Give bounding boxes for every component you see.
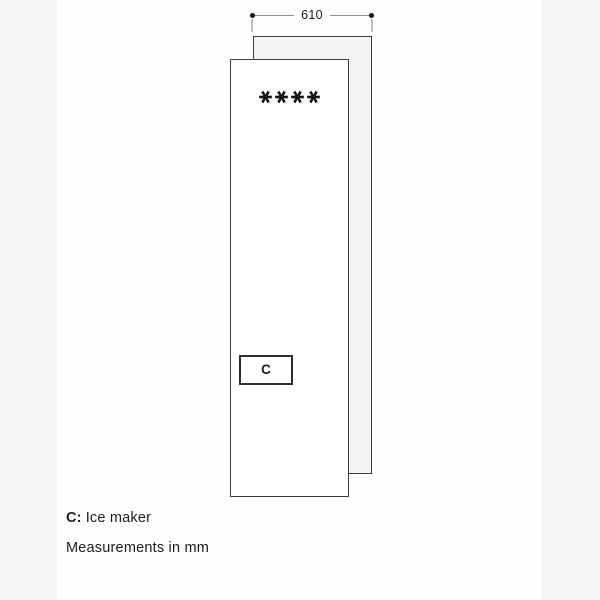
dimension-line: [330, 15, 369, 17]
ice-maker-marker-label: C: [261, 363, 271, 377]
legend-key: C:: [66, 510, 82, 526]
extension-line-left: [251, 19, 253, 32]
dimension-line: [255, 15, 294, 17]
legend: C:Ice maker Measurements in mm: [66, 511, 209, 570]
legend-item-ice-maker: C:Ice maker: [66, 511, 209, 526]
measurements-note: Measurements in mm: [66, 541, 209, 556]
width-dimension: 610: [250, 7, 374, 24]
appliance-dimension-diagram: 610 C C:Ice maker Measurements in mm: [0, 0, 600, 600]
legend-value: Ice maker: [86, 510, 151, 526]
dimension-label: 610: [294, 9, 330, 22]
freezer-star-rating: [231, 89, 348, 105]
star-icon: [306, 89, 321, 105]
star-icon: [258, 89, 273, 105]
star-icon: [290, 89, 305, 105]
appliance-front-door: C: [230, 59, 349, 497]
star-icon: [274, 89, 289, 105]
extension-line-right: [371, 19, 373, 32]
dimension-endpoint-dot: [369, 13, 374, 18]
ice-maker-marker: C: [239, 355, 293, 385]
